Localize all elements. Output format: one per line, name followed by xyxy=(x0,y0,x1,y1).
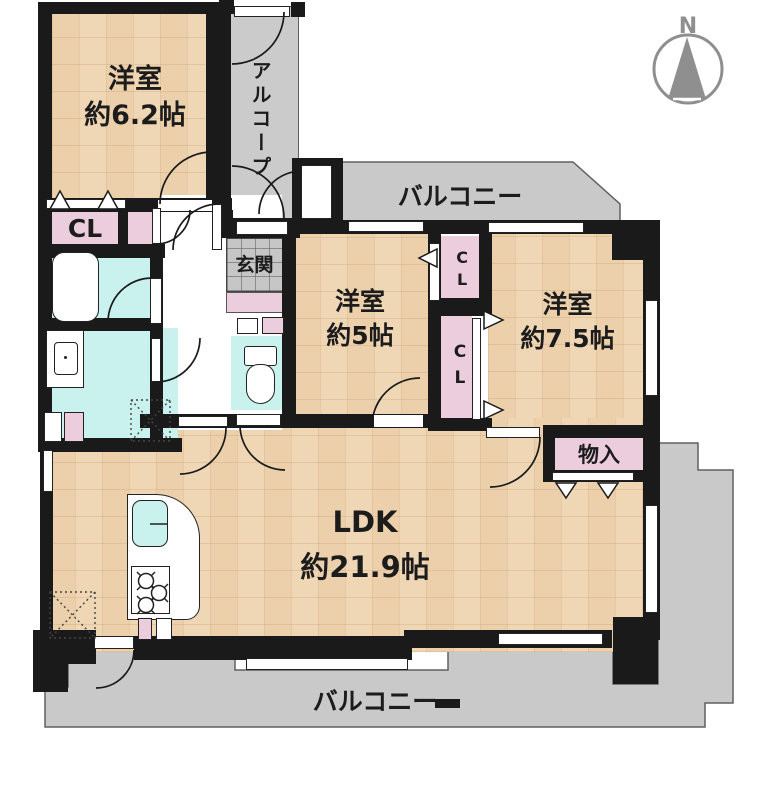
kitchen-sink xyxy=(132,500,168,547)
ldk-size: 約21.9帖 xyxy=(280,545,450,590)
bedroom-62-size: 約6.2帖 xyxy=(60,98,210,134)
entrance-hall-door xyxy=(212,204,222,250)
washroom-cabinet-white xyxy=(44,412,62,442)
entrance-shelf xyxy=(262,317,284,334)
washbasin-faucet xyxy=(64,356,67,359)
bedroom-75-side-window xyxy=(645,300,658,396)
kitchen-cabinet-pink xyxy=(138,618,152,640)
wall xyxy=(291,2,305,17)
wall xyxy=(613,617,658,684)
wall xyxy=(543,425,655,438)
closet-main-folding-door xyxy=(46,199,126,209)
ldk-balcony-window-2 xyxy=(498,633,603,645)
door-arc-balcony xyxy=(96,650,134,688)
ldk-balcony-window-1 xyxy=(246,658,408,670)
wall xyxy=(38,2,52,258)
bathtub xyxy=(52,252,99,322)
bedroom-62-name: 洋室 xyxy=(60,62,210,98)
ldk-side-window xyxy=(645,505,658,613)
toilet-door xyxy=(236,414,281,426)
storage-folding-door xyxy=(552,472,634,481)
front-door xyxy=(301,165,332,219)
bathroom-door xyxy=(150,278,162,324)
entrance-label: 玄関 xyxy=(226,253,283,279)
closet-lower-label: CL xyxy=(448,332,471,404)
bedroom-75-name: 洋室 xyxy=(495,288,640,322)
toilet-bowl xyxy=(246,364,275,404)
bedroom-62-label: 洋室 約6.2帖 xyxy=(60,62,210,135)
compass-circle xyxy=(654,35,722,103)
ldk-left-window xyxy=(43,450,53,492)
wall xyxy=(33,630,68,692)
bedroom-5-door-gap xyxy=(374,415,423,427)
washroom-cabinet-pink xyxy=(64,412,84,442)
toilet-tank xyxy=(244,346,277,366)
hall-closet-area xyxy=(128,207,152,244)
wall xyxy=(219,0,234,14)
kitchen-stove xyxy=(131,566,170,614)
hall-ldk-door xyxy=(178,416,228,427)
bedroom-5-window xyxy=(348,221,424,232)
wall xyxy=(118,206,128,246)
floor-plan: 洋室 約6.2帖 アルコープ バルコニー CL 玄関 洋室 約5帖 CL CL … xyxy=(0,0,759,800)
storage-label: 物入 xyxy=(553,441,645,469)
balcony-bottom-label: バルコニー xyxy=(265,685,485,719)
kitchen-cabinet-white xyxy=(156,618,172,640)
compass xyxy=(654,35,722,103)
bedroom-5-label: 洋室 約5帖 xyxy=(290,285,430,353)
bedroom-75-size: 約7.5帖 xyxy=(495,322,640,356)
wall xyxy=(479,234,492,304)
balcony-door xyxy=(94,636,134,649)
closet-upper-door xyxy=(429,243,440,301)
closet-upper-label: CL xyxy=(451,243,473,297)
ldk-name: LDK xyxy=(280,500,450,545)
entrance-cabinet xyxy=(237,318,258,334)
entrance-opening xyxy=(236,221,288,235)
alcove-label: アルコープ xyxy=(246,36,273,204)
bedroom-75-label: 洋室 約7.5帖 xyxy=(495,288,640,356)
ldk-label: LDK 約21.9帖 xyxy=(280,500,450,590)
washroom-door xyxy=(151,338,161,382)
bedroom-62-door-gap xyxy=(158,200,212,211)
balcony-top-label: バルコニー xyxy=(350,180,570,214)
hall-closet-door xyxy=(152,208,161,244)
wall xyxy=(428,418,492,431)
bedroom-75-door xyxy=(486,427,540,438)
compass-needle xyxy=(668,37,706,99)
bedroom-5-name: 洋室 xyxy=(290,285,430,319)
compass-north-label: N xyxy=(676,12,700,42)
entrance-shoe-cabinet xyxy=(226,292,283,313)
closet-main-label: CL xyxy=(55,212,115,246)
bedroom-75-top-window xyxy=(488,222,584,233)
wall xyxy=(134,636,412,660)
bedroom-5-size: 約5帖 xyxy=(290,319,430,353)
closet-lower-door xyxy=(472,318,481,420)
alcove-top-opening xyxy=(234,6,290,17)
wall xyxy=(38,2,220,14)
wall xyxy=(290,220,660,234)
